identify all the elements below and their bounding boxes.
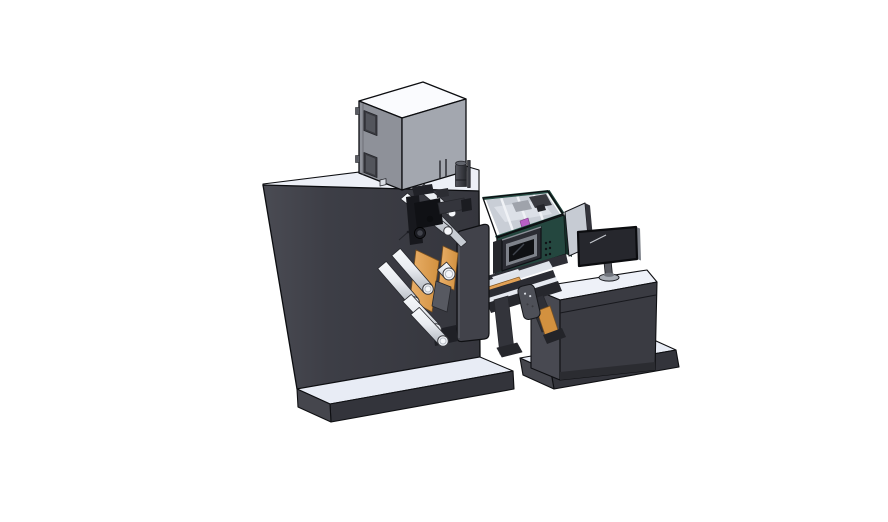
- antenna-rod: [468, 161, 471, 188]
- extractor-knob: [456, 161, 467, 186]
- fume-extractor-box: [356, 82, 467, 190]
- display-mount: [493, 239, 502, 274]
- head-knob-center: [417, 230, 423, 236]
- cad-scene: [0, 0, 888, 522]
- head-arm-end: [461, 198, 472, 212]
- extractor-hinge: [356, 156, 360, 163]
- head-pin: [427, 216, 433, 222]
- cad-render-viewport: [0, 0, 888, 522]
- extractor-hinge: [356, 108, 360, 115]
- monitor-screen: [578, 227, 637, 266]
- extractor-label-plate: [380, 179, 386, 186]
- monitor-stand-hub: [604, 273, 615, 277]
